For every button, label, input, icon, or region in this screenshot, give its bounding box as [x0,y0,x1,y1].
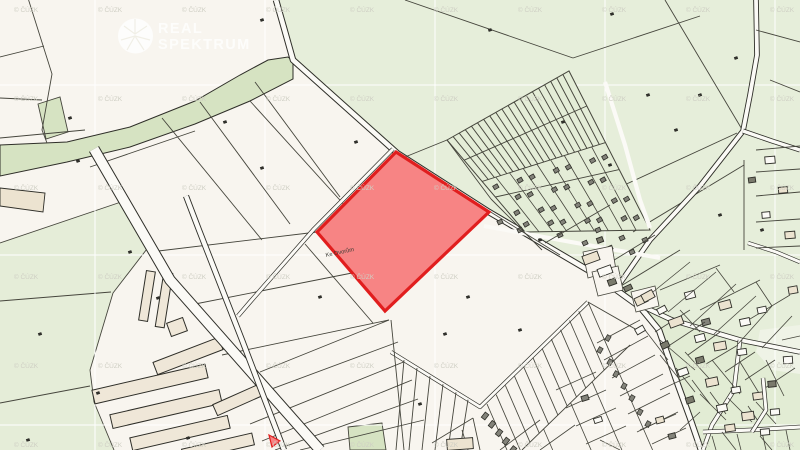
svg-text:© ČÚZK: © ČÚZK [98,94,123,103]
svg-text:© ČÚZK: © ČÚZK [350,272,375,281]
svg-text:© ČÚZK: © ČÚZK [686,272,711,281]
svg-text:© ČÚZK: © ČÚZK [518,183,543,192]
svg-text:© ČÚZK: © ČÚZK [350,5,375,14]
svg-text:© ČÚZK: © ČÚZK [518,5,543,14]
svg-text:© ČÚZK: © ČÚZK [182,440,207,449]
svg-text:© ČÚZK: © ČÚZK [686,440,711,449]
svg-text:© ČÚZK: © ČÚZK [602,94,627,103]
svg-text:© ČÚZK: © ČÚZK [182,5,207,14]
svg-text:© ČÚZK: © ČÚZK [14,94,39,103]
svg-text:© ČÚZK: © ČÚZK [770,5,795,14]
svg-text:© ČÚZK: © ČÚZK [518,272,543,281]
svg-text:© ČÚZK: © ČÚZK [14,5,39,14]
svg-text:© ČÚZK: © ČÚZK [434,272,459,281]
svg-text:© ČÚZK: © ČÚZK [14,361,39,370]
svg-text:© ČÚZK: © ČÚZK [686,5,711,14]
svg-text:© ČÚZK: © ČÚZK [686,183,711,192]
svg-text:© ČÚZK: © ČÚZK [14,272,39,281]
svg-text:© ČÚZK: © ČÚZK [182,361,207,370]
svg-text:© ČÚZK: © ČÚZK [350,94,375,103]
svg-text:© ČÚZK: © ČÚZK [770,183,795,192]
svg-text:© ČÚZK: © ČÚZK [350,183,375,192]
svg-text:© ČÚZK: © ČÚZK [182,183,207,192]
svg-text:© ČÚZK: © ČÚZK [770,272,795,281]
svg-text:© ČÚZK: © ČÚZK [434,361,459,370]
svg-text:© ČÚZK: © ČÚZK [98,272,123,281]
svg-text:© ČÚZK: © ČÚZK [434,94,459,103]
svg-text:© ČÚZK: © ČÚZK [266,361,291,370]
svg-text:© ČÚZK: © ČÚZK [182,272,207,281]
svg-text:© ČÚZK: © ČÚZK [350,440,375,449]
svg-text:© ČÚZK: © ČÚZK [266,183,291,192]
svg-text:© ČÚZK: © ČÚZK [434,5,459,14]
svg-text:© ČÚZK: © ČÚZK [350,361,375,370]
svg-text:© ČÚZK: © ČÚZK [98,361,123,370]
svg-text:© ČÚZK: © ČÚZK [266,440,291,449]
svg-text:© ČÚZK: © ČÚZK [602,361,627,370]
svg-text:© ČÚZK: © ČÚZK [434,183,459,192]
svg-text:© ČÚZK: © ČÚZK [266,94,291,103]
svg-text:© ČÚZK: © ČÚZK [266,5,291,14]
svg-text:SPEKTRUM: SPEKTRUM [158,37,251,53]
svg-text:© ČÚZK: © ČÚZK [518,440,543,449]
svg-text:© ČÚZK: © ČÚZK [602,440,627,449]
svg-text:© ČÚZK: © ČÚZK [602,272,627,281]
svg-text:© ČÚZK: © ČÚZK [686,94,711,103]
svg-text:© ČÚZK: © ČÚZK [98,440,123,449]
svg-text:© ČÚZK: © ČÚZK [602,183,627,192]
svg-text:© ČÚZK: © ČÚZK [518,361,543,370]
svg-text:© ČÚZK: © ČÚZK [686,361,711,370]
svg-text:© ČÚZK: © ČÚZK [434,440,459,449]
svg-text:© ČÚZK: © ČÚZK [518,94,543,103]
svg-text:© ČÚZK: © ČÚZK [98,183,123,192]
svg-text:REAL: REAL [158,21,203,37]
svg-text:© ČÚZK: © ČÚZK [14,440,39,449]
svg-text:© ČÚZK: © ČÚZK [770,94,795,103]
svg-text:© ČÚZK: © ČÚZK [266,272,291,281]
svg-text:© ČÚZK: © ČÚZK [770,361,795,370]
svg-text:© ČÚZK: © ČÚZK [98,5,123,14]
svg-text:© ČÚZK: © ČÚZK [182,94,207,103]
svg-text:© ČÚZK: © ČÚZK [770,440,795,449]
svg-text:© ČÚZK: © ČÚZK [602,5,627,14]
svg-text:© ČÚZK: © ČÚZK [14,183,39,192]
